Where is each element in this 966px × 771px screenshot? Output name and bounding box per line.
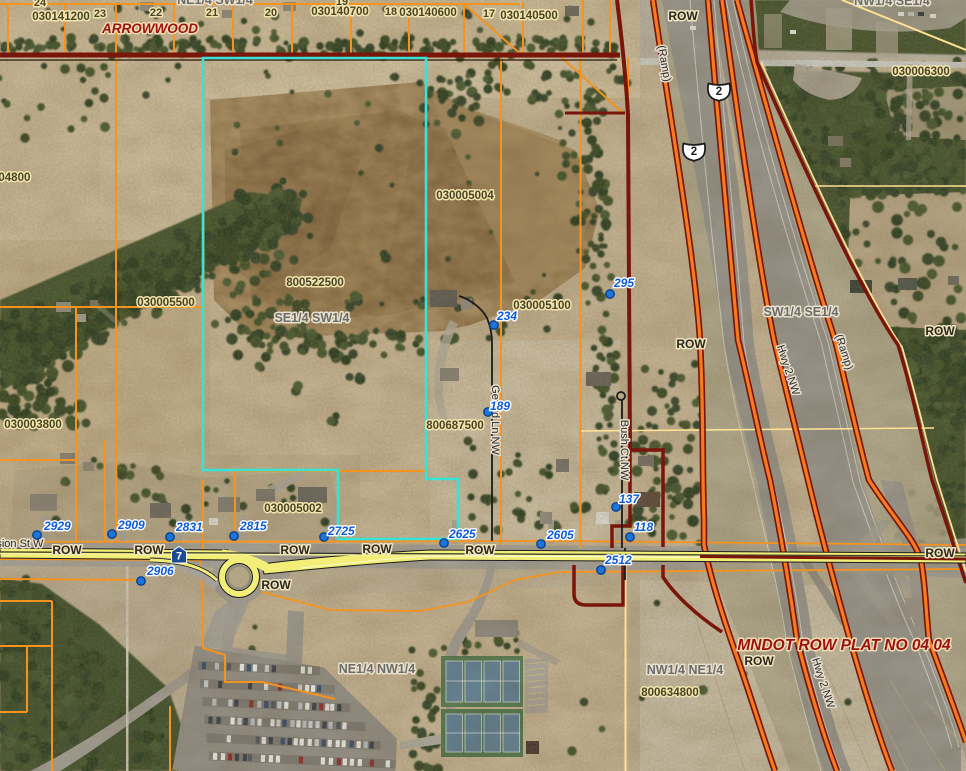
svg-text:030140600: 030140600: [399, 7, 457, 19]
svg-text:ROW: ROW: [668, 9, 698, 23]
svg-text:18: 18: [385, 6, 397, 18]
svg-text:22: 22: [150, 7, 162, 19]
svg-text:2: 2: [691, 146, 697, 158]
svg-text:137: 137: [619, 492, 640, 506]
svg-text:030006300: 030006300: [892, 66, 950, 78]
svg-text:NE1/4 SW1/4: NE1/4 SW1/4: [177, 0, 253, 7]
svg-text:ARROWWOOD: ARROWWOOD: [101, 21, 198, 36]
svg-text:030005004: 030005004: [436, 190, 494, 202]
svg-text:030005100: 030005100: [513, 300, 571, 312]
svg-text:2725: 2725: [327, 524, 355, 538]
svg-text:21: 21: [206, 7, 218, 19]
svg-text:ROW: ROW: [925, 324, 955, 338]
svg-text:2512: 2512: [604, 553, 632, 567]
svg-text:2929: 2929: [43, 519, 71, 533]
svg-text:030003800: 030003800: [4, 419, 62, 431]
svg-text:NW1/4 SE1/4: NW1/4 SE1/4: [854, 0, 930, 8]
svg-text:800522500: 800522500: [286, 277, 344, 289]
svg-text:23: 23: [94, 8, 106, 20]
svg-text:ROW: ROW: [744, 654, 774, 668]
svg-text:118: 118: [634, 520, 653, 534]
svg-text:004800: 004800: [0, 172, 30, 184]
svg-text:189: 189: [490, 399, 510, 413]
svg-text:20: 20: [265, 7, 277, 19]
svg-text:2906: 2906: [146, 564, 174, 578]
svg-text:ROW: ROW: [134, 543, 164, 557]
svg-text:Bush Ct NW: Bush Ct NW: [618, 420, 630, 481]
svg-text:ROW: ROW: [52, 543, 82, 557]
svg-text:030140700: 030140700: [311, 6, 369, 18]
svg-text:7: 7: [176, 551, 182, 563]
svg-text:800687500: 800687500: [426, 420, 484, 432]
svg-text:ROW: ROW: [261, 578, 291, 592]
svg-text:ROW: ROW: [925, 546, 955, 560]
svg-text:2815: 2815: [239, 519, 267, 533]
svg-text:ROW: ROW: [362, 542, 392, 556]
svg-text:24: 24: [34, 0, 47, 9]
svg-text:234: 234: [496, 309, 517, 323]
svg-text:NW1/4 NE1/4: NW1/4 NE1/4: [647, 663, 723, 677]
svg-text:NE1/4 NW1/4: NE1/4 NW1/4: [339, 662, 415, 676]
svg-text:2605: 2605: [546, 528, 574, 542]
svg-text:030005002: 030005002: [264, 503, 322, 515]
svg-text:2909: 2909: [117, 518, 145, 532]
svg-text:SE1/4 SW1/4: SE1/4 SW1/4: [274, 311, 349, 325]
svg-text:ROW: ROW: [280, 543, 310, 557]
svg-text:Gerald Ln NW: Gerald Ln NW: [489, 385, 501, 455]
svg-text:ROW: ROW: [676, 337, 706, 351]
svg-text:17: 17: [483, 8, 495, 20]
svg-text:SW1/4 SE1/4: SW1/4 SE1/4: [763, 305, 838, 319]
svg-text:2625: 2625: [448, 527, 476, 541]
svg-text:ROW: ROW: [465, 543, 495, 557]
svg-text:030005500: 030005500: [137, 297, 195, 309]
svg-text:030140500: 030140500: [500, 10, 558, 22]
svg-text:030141200: 030141200: [32, 11, 90, 23]
svg-text:MNDOT ROW PLAT NO 04 04: MNDOT ROW PLAT NO 04 04: [737, 637, 951, 654]
svg-text:800634800: 800634800: [641, 687, 699, 699]
svg-text:2: 2: [716, 86, 722, 98]
svg-text:295: 295: [613, 276, 634, 290]
svg-text:2831: 2831: [175, 520, 203, 534]
